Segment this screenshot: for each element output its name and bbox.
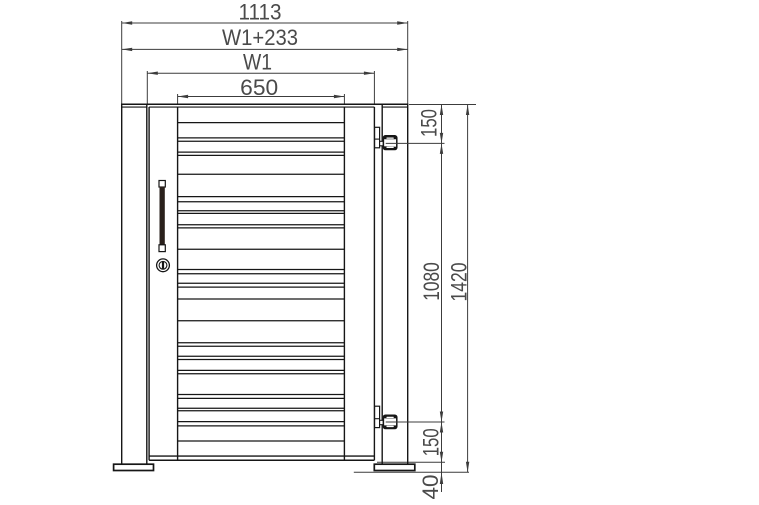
svg-text:150: 150 [416,109,441,137]
svg-text:150: 150 [418,428,443,456]
svg-text:1113: 1113 [239,0,282,25]
svg-text:1420: 1420 [446,263,471,302]
svg-text:1080: 1080 [419,262,444,301]
svg-text:40: 40 [418,475,443,500]
svg-text:650: 650 [240,75,278,100]
svg-text:W1+233: W1+233 [222,25,298,50]
svg-text:W1: W1 [243,49,272,74]
